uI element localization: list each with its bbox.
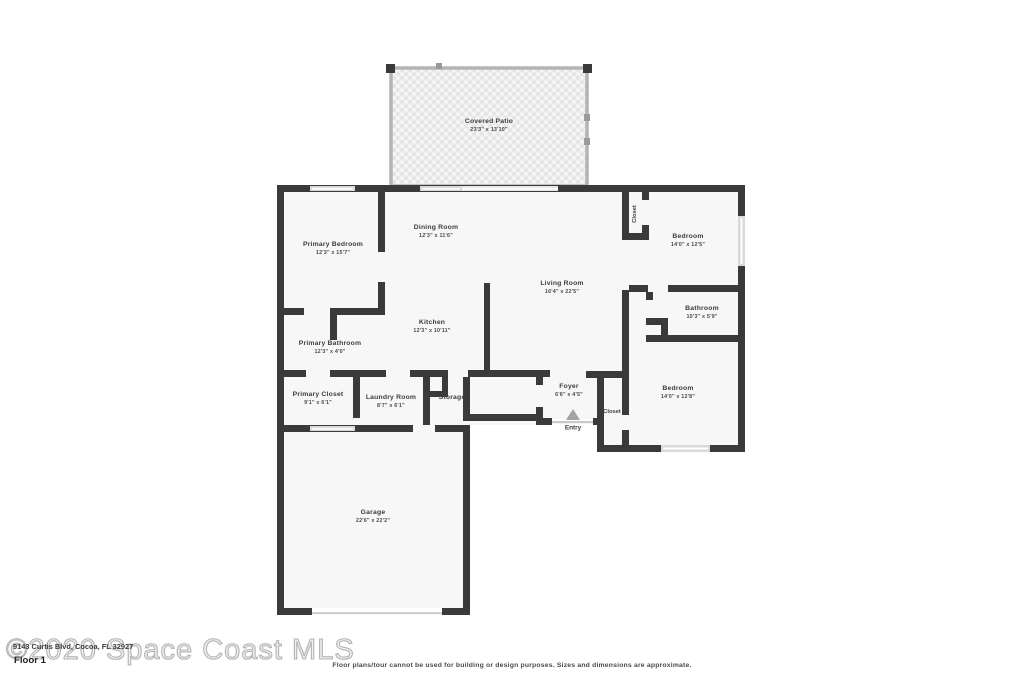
property-address: 9143 Curtis Blvd, Cocoa, FL 32927 <box>13 642 133 651</box>
entry-label: Entry <box>565 425 581 432</box>
covered-patio-area <box>386 63 592 186</box>
floorplan-canvas: Covered Patio 23'3" x 13'10" Primary Bed… <box>0 0 1024 683</box>
disclaimer-text: Floor plans/tour cannot be used for buil… <box>0 662 1024 669</box>
floorplan-drawing <box>0 0 1024 683</box>
house-footprint <box>277 185 745 615</box>
